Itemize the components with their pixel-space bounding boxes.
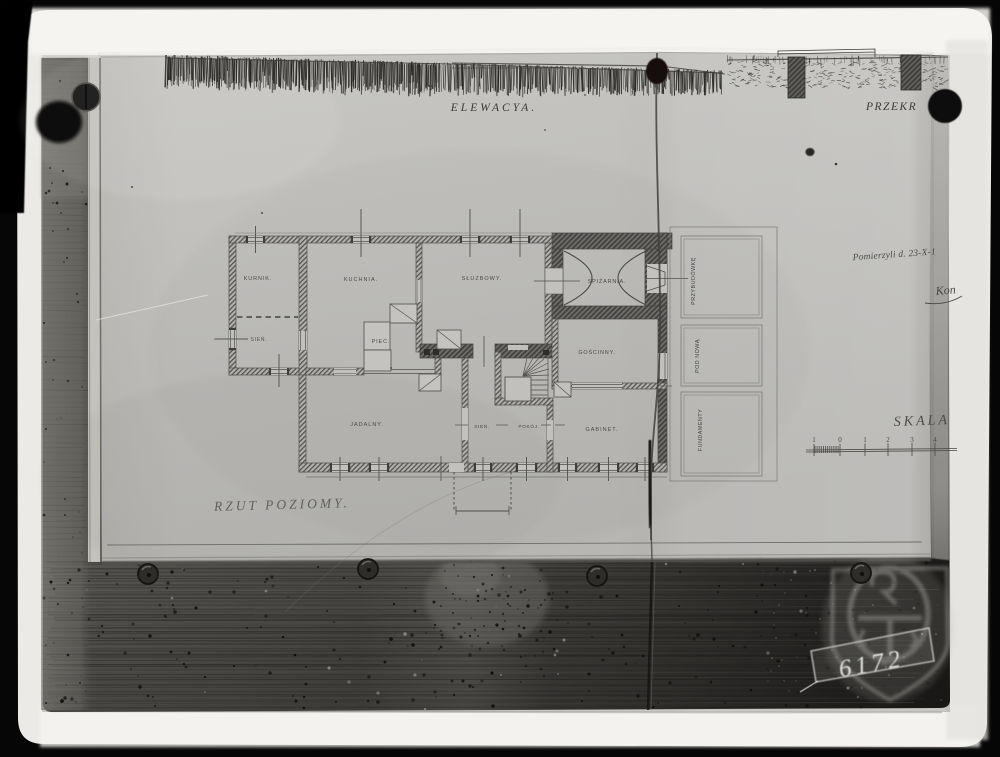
svg-text:KURNIK.: KURNIK.: [244, 276, 273, 282]
svg-text:PIEC.: PIEC.: [372, 339, 391, 345]
svg-text:3: 3: [910, 436, 914, 444]
svg-text:GOŚCINNY.: GOŚCINNY.: [578, 348, 615, 356]
svg-text:SŁUZBOWY.: SŁUZBOWY.: [462, 276, 503, 282]
svg-text:1: 1: [863, 436, 867, 444]
svg-text:SPIŻARNIA.: SPIŻARNIA.: [588, 278, 627, 285]
svg-text:PRZEKR: PRZEKR: [865, 101, 917, 113]
svg-text:ELEWACYA.: ELEWACYA.: [450, 102, 537, 114]
svg-text:4: 4: [933, 436, 937, 444]
svg-text:Kon: Kon: [934, 282, 956, 298]
svg-text:SIEŃ.: SIEŃ.: [250, 336, 267, 343]
svg-text:0: 0: [838, 436, 842, 444]
svg-text:SKALA: SKALA: [894, 413, 951, 430]
svg-text:2: 2: [886, 436, 890, 444]
svg-text:KUCHNIA.: KUCHNIA.: [344, 277, 378, 283]
svg-text:POKÓJ.: POKÓJ.: [518, 423, 539, 430]
svg-text:GABINET.: GABINET.: [585, 427, 618, 433]
svg-text:PRZYBUDÓWKĘ: PRZYBUDÓWKĘ: [690, 257, 697, 305]
svg-text:FUNDAMENTY: FUNDAMENTY: [698, 409, 704, 451]
svg-text:SIEŃ.: SIEŃ.: [474, 423, 490, 430]
svg-text:1: 1: [812, 436, 816, 444]
svg-text:JADALNY.: JADALNY.: [350, 422, 384, 428]
svg-text:POD NOWĄ: POD NOWĄ: [695, 339, 701, 373]
